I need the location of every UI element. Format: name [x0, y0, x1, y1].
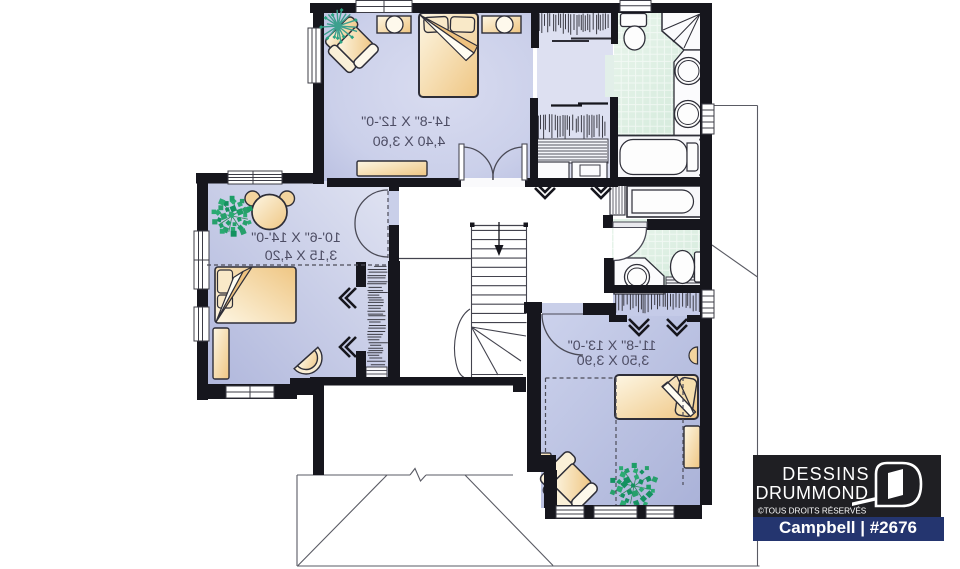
svg-text:DRUMMOND: DRUMMOND	[756, 483, 869, 503]
svg-text:14'-8" X 12'-0": 14'-8" X 12'-0"	[361, 114, 451, 130]
svg-text:4,40 X 3,60: 4,40 X 3,60	[373, 134, 446, 150]
svg-text:3,15 X 4,20: 3,15 X 4,20	[265, 248, 338, 264]
svg-text:©TOUS DROITS RÉSERVÉS: ©TOUS DROITS RÉSERVÉS	[758, 506, 867, 516]
svg-text:10'-6" X 14'-0": 10'-6" X 14'-0"	[251, 230, 341, 246]
svg-text:DESSINS: DESSINS	[782, 464, 869, 484]
svg-text:Campbell | #2676: Campbell | #2676	[779, 518, 917, 537]
svg-text:3,50 X 3,90: 3,50 X 3,90	[577, 353, 650, 369]
svg-text:11'-8" X 13'-0": 11'-8" X 13'-0"	[568, 338, 657, 354]
